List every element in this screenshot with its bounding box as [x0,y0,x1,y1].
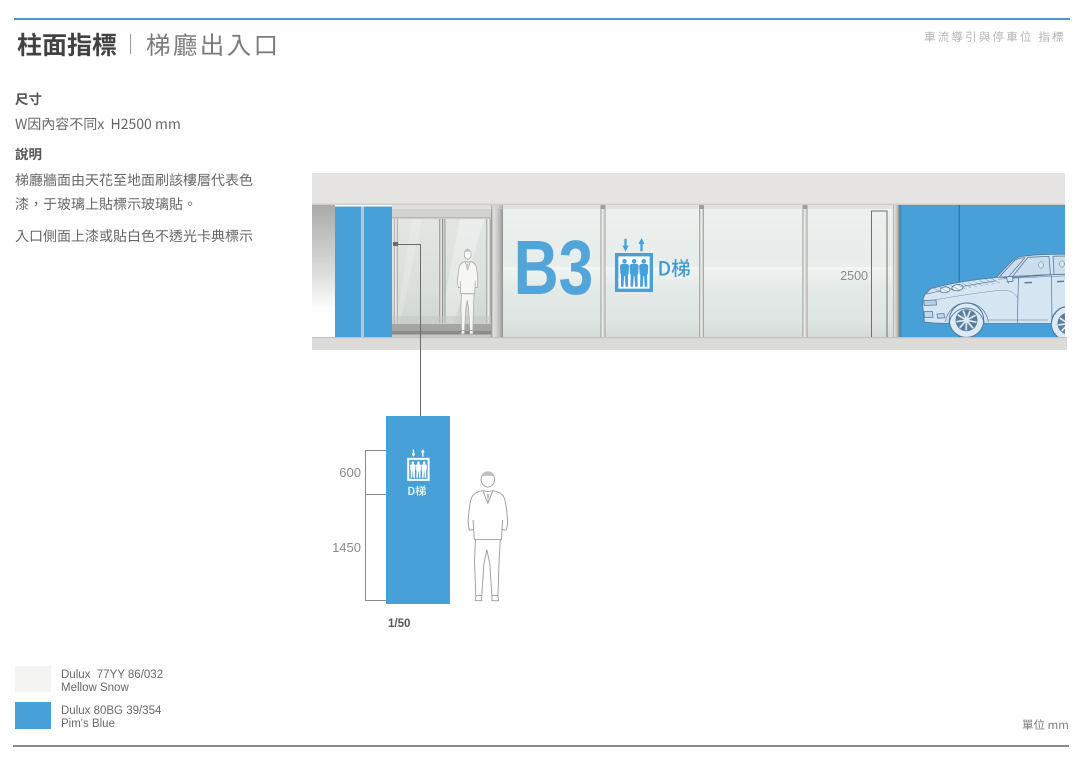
svg-text:B3: B3 [514,225,594,311]
svg-text:2500: 2500 [840,269,868,283]
